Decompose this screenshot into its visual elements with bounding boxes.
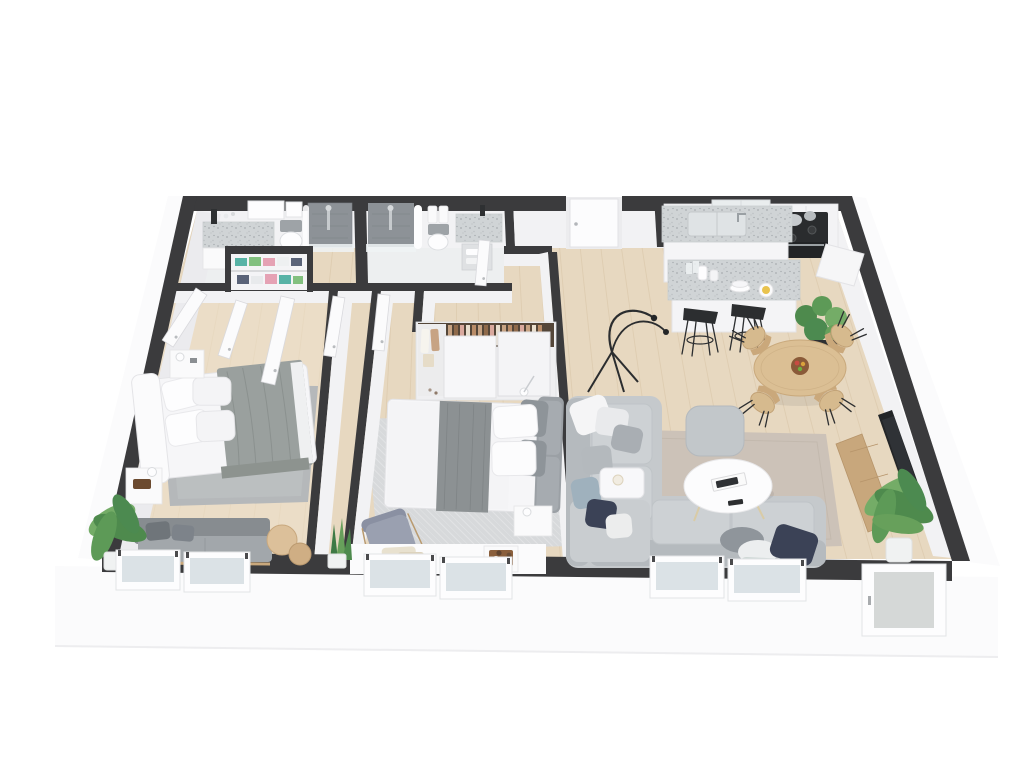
window-unit xyxy=(650,556,724,598)
patio-door-glass xyxy=(874,572,934,628)
floorplan-image xyxy=(0,0,1024,768)
shoe xyxy=(428,388,431,391)
canister xyxy=(710,270,718,281)
candle xyxy=(613,475,623,485)
hanging-garment xyxy=(430,329,440,352)
toilet-bowl xyxy=(428,234,448,250)
fruit-bowl xyxy=(791,357,809,375)
door-handle xyxy=(868,596,871,605)
nightstand-north xyxy=(170,350,204,378)
food xyxy=(762,286,770,294)
open-closet-section xyxy=(418,324,446,396)
walk-in-closet xyxy=(416,322,556,400)
sliding-door xyxy=(444,336,496,398)
lamp-head xyxy=(663,329,669,335)
floorplan-3d-render xyxy=(0,0,1024,768)
canister xyxy=(698,266,707,280)
window-unit xyxy=(184,552,250,592)
hanging-towel xyxy=(439,206,448,223)
shower-glass xyxy=(306,244,354,252)
glass xyxy=(693,261,699,273)
hanging-garment xyxy=(420,329,429,353)
fruit xyxy=(798,367,802,371)
bottle xyxy=(231,212,235,216)
closet-wall-left xyxy=(225,246,231,292)
plant-pot xyxy=(886,538,912,562)
entry-door xyxy=(566,197,622,249)
fruit xyxy=(795,361,800,366)
double-bed xyxy=(384,391,564,515)
sliding-door xyxy=(498,332,550,396)
closet-wall-top xyxy=(225,246,313,254)
nightstand xyxy=(514,506,552,536)
patio-door xyxy=(862,564,946,636)
plant-pot xyxy=(328,554,346,568)
tote-bag xyxy=(423,354,434,367)
shower-head xyxy=(388,205,394,211)
shower-head xyxy=(326,205,332,211)
ottoman xyxy=(686,406,744,456)
bathroom-divider-wall xyxy=(354,199,368,283)
pot xyxy=(804,211,816,221)
mirror xyxy=(248,201,284,219)
toilet-tank xyxy=(428,224,449,235)
burner xyxy=(808,226,816,234)
shower-curtain xyxy=(414,205,422,249)
table-lamp xyxy=(148,468,157,477)
black-vase xyxy=(480,205,485,216)
hanging-towel xyxy=(428,206,437,223)
window-unit xyxy=(116,550,180,590)
linen-closet xyxy=(225,246,313,292)
shower-curtain xyxy=(303,205,309,249)
lamp-head xyxy=(651,315,657,321)
glass xyxy=(686,263,692,274)
jar-lid xyxy=(496,550,501,555)
black-vase xyxy=(211,209,217,224)
bath-band-wall-top xyxy=(163,283,512,291)
round-dining-table xyxy=(754,340,846,396)
plate-stack xyxy=(732,281,748,288)
toilet-tank xyxy=(280,220,302,232)
wood-tray xyxy=(133,479,151,489)
alarm-clock xyxy=(190,358,197,363)
bench-pillow xyxy=(171,524,194,542)
shower-glass xyxy=(366,244,416,252)
fruit xyxy=(801,362,805,366)
entry-stub-wall-face xyxy=(622,211,658,247)
window-unit xyxy=(728,559,806,601)
round-side-table xyxy=(289,543,311,565)
vanity-terrazzo-counter xyxy=(203,222,274,250)
bottle xyxy=(224,214,229,219)
shower-column xyxy=(389,208,392,230)
walk-in-shower xyxy=(303,203,354,252)
bench-pillow xyxy=(145,521,171,541)
window-unit xyxy=(440,557,512,599)
closet-wall-right xyxy=(307,246,313,292)
walk-in-shower xyxy=(366,203,422,252)
shower-column xyxy=(327,208,330,230)
table-lamp xyxy=(176,353,184,361)
shoe xyxy=(434,391,437,394)
vanity-terrazzo-counter xyxy=(456,214,502,242)
window-unit xyxy=(364,554,436,596)
table-lamp xyxy=(523,508,531,516)
mirror-small xyxy=(286,202,302,217)
door-handle xyxy=(574,222,578,226)
